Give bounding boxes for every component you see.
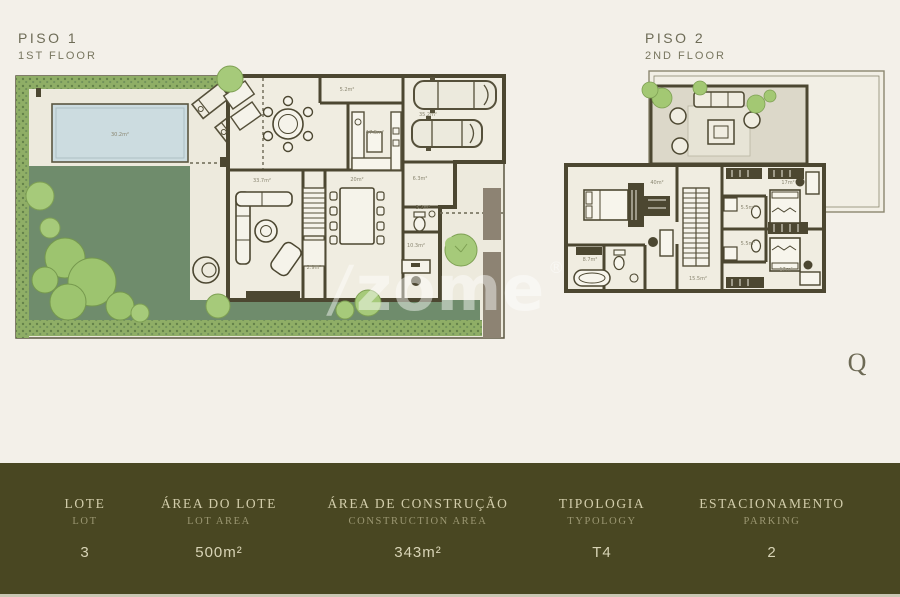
area-label-suite: 40m² [650,180,663,186]
floorplans-svg: 30.2m² [0,0,900,460]
tree-icon [445,234,477,266]
hanging-chair-icon [193,257,219,283]
area-label-bedroom2: 17m² [779,267,792,273]
car-icon [414,77,496,113]
area-label-bath1: 5.5m² [741,205,756,211]
lot-label-en: LOT [65,516,106,527]
typology-value: T4 [559,544,645,561]
area-label-entry: 5.2m² [340,87,355,93]
area-label-bedroom1: 17m² [781,180,794,186]
armchair-icon [255,220,277,242]
lot-area-value: 500m² [161,544,277,561]
stairs-floor2 [683,188,709,266]
hedge-bottom [16,320,482,336]
compass-q-mark: Q [842,348,872,378]
gate-wall [483,188,501,240]
bed-icon [584,190,628,220]
area-label-stairs: 2.9m² [307,265,322,271]
summary-col-lot: LOTE LOT 3 [65,496,106,561]
typology-label-en: TYPOLOGY [559,516,645,527]
area-label-pool: 30.2m² [111,132,129,138]
area-label-living: 33.7m² [253,178,271,184]
lot-area-label-en: LOT AREA [161,516,277,527]
tv-bench [246,291,300,298]
bathtub-icon [574,270,610,286]
lot-area-label-pt: ÁREA DO LOTE [161,496,277,512]
closet-icon [576,247,602,255]
area-label-bath2: 5.5m² [741,241,756,247]
summary-bar: LOTE LOT 3 ÁREA DO LOTE LOT AREA 500m² Á… [0,463,900,597]
parking-value: 2 [699,544,845,561]
area-label-wc: 3.2m² [416,205,431,211]
stairs-floor1 [303,188,325,266]
area-label-garage: 35.2m² [419,112,437,118]
area-label-landing: 15.5m² [689,276,707,282]
pool: 30.2m² [52,104,188,162]
construction-area-value: 343m² [327,544,508,561]
gate-wall [483,252,501,338]
area-label-suite-bath: 8.7m² [583,257,598,263]
bed-icon [770,190,800,223]
hedge-left [16,76,29,338]
lot-value: 3 [65,544,106,561]
construction-area-label-en: CONSTRUCTION AREA [327,516,508,527]
car-icon [412,116,482,151]
dresser-icon [768,222,808,234]
parking-label-pt: ESTACIONAMENTO [699,496,845,512]
construction-area-label-pt: ÁREA DE CONSTRUÇÃO [327,496,508,512]
area-label-hall: 6.3m² [413,176,428,182]
garden-post [36,88,41,97]
floor2-plan: 40m² 8.7m² 15.5m² 5.5m² 5.5m² 17m² 17m² [566,71,884,291]
area-label-office: 10.3m² [407,243,425,249]
parking-label-en: PARKING [699,516,845,527]
lot-label-pt: LOTE [65,496,106,512]
summary-col-construction-area: ÁREA DE CONSTRUÇÃO CONSTRUCTION AREA 343… [327,496,508,561]
typology-label-pt: TIPOLOGIA [559,496,645,512]
summary-col-lot-area: ÁREA DO LOTE LOT AREA 500m² [161,496,277,561]
summary-col-parking: ESTACIONAMENTO PARKING 2 [699,496,845,561]
floorplan-sheet: PISO 1 1ST FLOOR PISO 2 2ND FLOOR [0,0,900,597]
area-label-kitchen: 17.5m² [366,130,384,136]
summary-col-typology: TIPOLOGIA TYPOLOGY T4 [559,496,645,561]
floor1-plan: 30.2m² [16,66,504,338]
area-label-dining: 20m² [350,177,363,183]
